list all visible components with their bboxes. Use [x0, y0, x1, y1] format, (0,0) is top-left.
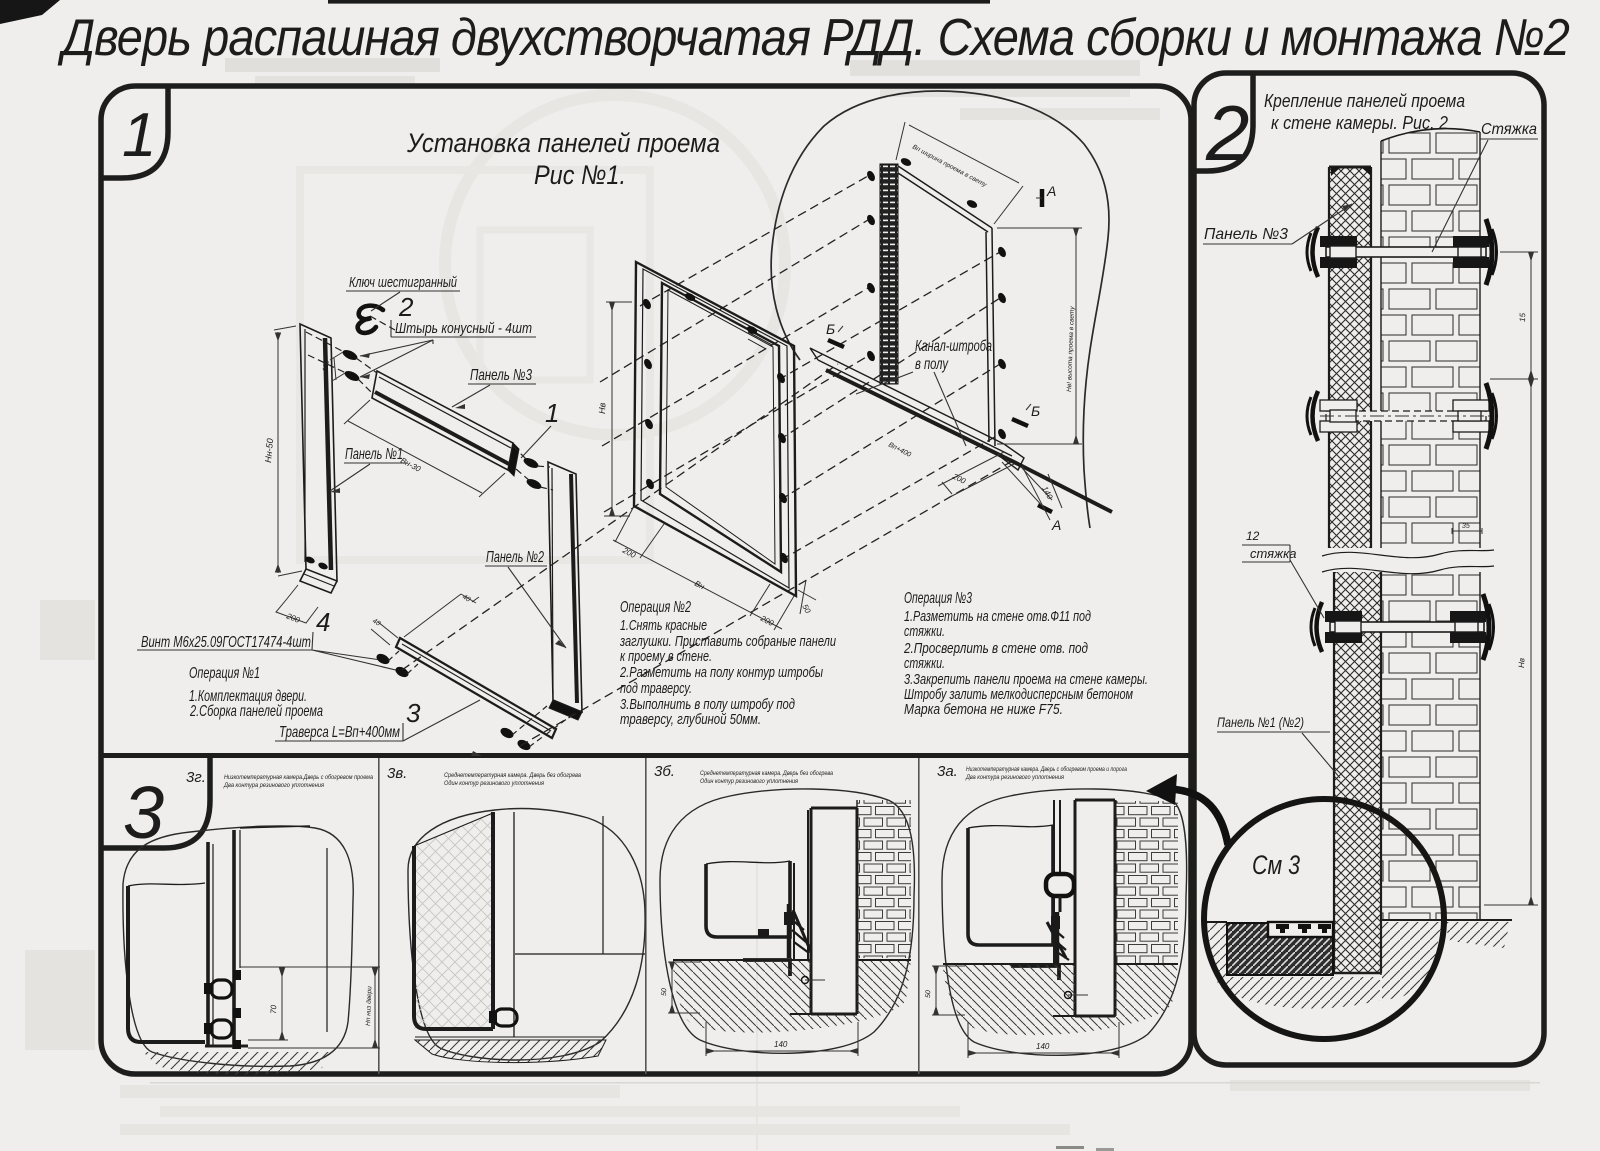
svg-text:Нн-50: Нн-50	[263, 438, 275, 463]
svg-text:Низкотемпературная камера.Двер: Низкотемпературная камера.Дверь с обогре…	[224, 773, 373, 781]
svg-text:4: 4	[316, 607, 330, 637]
svg-text:12: 12	[1246, 529, 1260, 543]
svg-text:50: 50	[661, 988, 668, 996]
svg-text:в полу: в полу	[915, 356, 949, 373]
svg-text:Б: Б	[826, 321, 835, 337]
svg-text:3г.: 3г.	[186, 769, 206, 786]
svg-text:стяжки.: стяжки.	[904, 655, 945, 672]
svg-text:Операция №3: Операция №3	[904, 590, 972, 607]
svg-text:35: 35	[1462, 523, 1470, 530]
svg-text:3в.: 3в.	[387, 765, 407, 782]
svg-text:к проему в стене.: к проему в стене.	[620, 648, 712, 665]
svg-text:2.Разметить на полу контур штр: 2.Разметить на полу контур штробы	[619, 664, 823, 681]
svg-text:Панель №3: Панель №3	[1204, 226, 1288, 243]
svg-text:Нв: Нв	[1517, 658, 1526, 668]
svg-text:Стяжка: Стяжка	[1481, 121, 1537, 138]
svg-text:А: А	[1051, 517, 1061, 533]
svg-text:Один контур резинового уплотне: Один контур резинового уплотнения	[444, 779, 544, 787]
svg-text:15: 15	[1518, 312, 1527, 322]
svg-text:3: 3	[123, 771, 164, 854]
svg-text:3а.: 3а.	[937, 763, 958, 780]
svg-text:Б: Б	[1031, 403, 1040, 419]
svg-text:стяжки.: стяжки.	[904, 623, 945, 640]
svg-text:140: 140	[1036, 1042, 1050, 1051]
svg-text:1: 1	[545, 398, 559, 428]
svg-text:А: А	[1046, 183, 1056, 199]
svg-text:Марка бетона не ниже F75.: Марка бетона не ниже F75.	[904, 701, 1063, 718]
svg-text:Операция №2: Операция №2	[620, 599, 691, 616]
svg-text:Два контура резинового уплотне: Два контура резинового уплотнения	[223, 782, 324, 789]
svg-text:Панель №1: Панель №1	[345, 446, 403, 463]
svg-text:траверсу, глубиной 50мм.: траверсу, глубиной 50мм.	[620, 711, 761, 728]
svg-text:Низкотемпературная камера. Две: Низкотемпературная камера. Дверь с обогр…	[966, 765, 1127, 773]
svg-text:Дверь распашная двухстворчатая: Дверь распашная двухстворчатая РДД. Схем…	[57, 9, 1569, 67]
svg-text:Панель №3: Панель №3	[470, 367, 532, 384]
svg-text:3б.: 3б.	[654, 763, 675, 780]
svg-text:Ключ шестигранный: Ключ шестигранный	[349, 274, 457, 291]
svg-text:Один контур резинового уплотне: Один контур резинового уплотнения	[700, 777, 798, 785]
svg-text:под траверсу.: под траверсу.	[620, 680, 692, 697]
svg-text:140: 140	[774, 1040, 788, 1049]
svg-text:Канал-штроба: Канал-штроба	[915, 338, 992, 355]
svg-text:Среднетемпературная камера. Дв: Среднетемпературная камера. Дверь без об…	[700, 769, 833, 777]
svg-text:Панель №2: Панель №2	[486, 549, 544, 566]
svg-text:Операция №1: Операция №1	[189, 665, 260, 682]
svg-text:70: 70	[269, 1004, 278, 1014]
svg-text:Штырь конусный - 4шт: Штырь конусный - 4шт	[395, 320, 532, 337]
svg-text:Крепление панелей проема: Крепление панелей проема	[1264, 91, 1465, 111]
svg-text:См 3: См 3	[1252, 850, 1300, 880]
svg-text:Нв: Нв	[597, 402, 607, 414]
svg-text:1.Снять красные: 1.Снять красные	[620, 617, 707, 634]
svg-text:3: 3	[406, 698, 421, 728]
svg-text:1: 1	[122, 101, 156, 170]
svg-text:Установка панелей проема: Установка панелей проема	[406, 128, 720, 158]
svg-text:Траверса L=Вп+400мм: Траверса L=Вп+400мм	[279, 724, 400, 741]
svg-text:2.Сборка панелей проема: 2.Сборка панелей проема	[189, 703, 323, 720]
svg-text:Нп низ двери: Нп низ двери	[364, 986, 373, 1026]
svg-text:2: 2	[1205, 89, 1249, 177]
svg-text:Панель №1 (№2): Панель №1 (№2)	[1217, 714, 1304, 730]
svg-text:Рис №1.: Рис №1.	[534, 160, 626, 190]
svg-text:2: 2	[398, 292, 414, 322]
svg-text:Винт М6х25.09ГОСТ17474-4шт: Винт М6х25.09ГОСТ17474-4шт	[141, 634, 311, 651]
svg-text:Среднетемпературная камера. Дв: Среднетемпературная камера. Дверь без об…	[444, 771, 581, 779]
svg-text:Два контура резинового уплотне: Два контура резинового уплотнения	[965, 774, 1064, 781]
svg-text:50: 50	[925, 990, 932, 998]
